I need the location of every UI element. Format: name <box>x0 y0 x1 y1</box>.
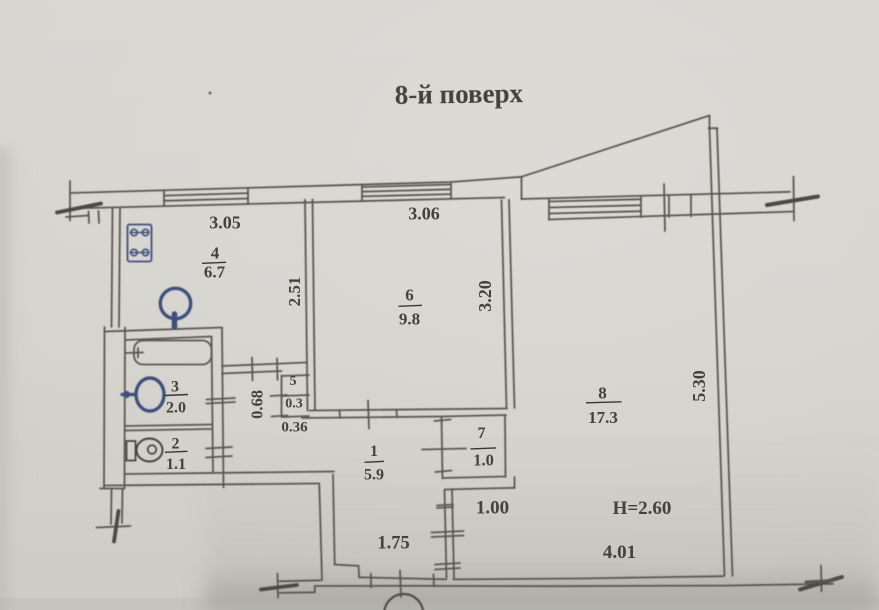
svg-text:6: 6 <box>405 286 414 305</box>
svg-text:1.0: 1.0 <box>473 451 494 470</box>
svg-text:6.7: 6.7 <box>204 263 226 282</box>
svg-text:3.05: 3.05 <box>209 213 241 233</box>
svg-text:4.01: 4.01 <box>603 542 636 563</box>
svg-text:1.75: 1.75 <box>377 534 409 554</box>
svg-text:5.9: 5.9 <box>364 467 384 484</box>
svg-text:2.51: 2.51 <box>285 277 304 307</box>
svg-text:7: 7 <box>478 425 486 442</box>
svg-text:5: 5 <box>290 374 297 389</box>
svg-text:0.3: 0.3 <box>285 397 303 412</box>
svg-text:2: 2 <box>172 436 180 453</box>
svg-text:0.36: 0.36 <box>281 420 308 436</box>
svg-text:9.8: 9.8 <box>399 310 420 329</box>
svg-text:3.20: 3.20 <box>475 280 495 312</box>
svg-text:17.3: 17.3 <box>588 408 618 427</box>
svg-text:1.1: 1.1 <box>166 456 186 473</box>
svg-text:3: 3 <box>171 379 179 396</box>
svg-text:5.30: 5.30 <box>689 370 709 402</box>
svg-text:8-й поверх: 8-й поверх <box>395 78 524 110</box>
svg-text:3.06: 3.06 <box>408 204 440 224</box>
svg-text:4: 4 <box>211 244 220 263</box>
svg-text:0.68: 0.68 <box>248 390 267 419</box>
svg-text:1.00: 1.00 <box>476 498 509 519</box>
svg-text:8: 8 <box>598 384 607 403</box>
svg-text:2.0: 2.0 <box>166 400 186 417</box>
svg-text:Н=2.60: Н=2.60 <box>613 498 672 519</box>
svg-text:1: 1 <box>370 443 378 460</box>
